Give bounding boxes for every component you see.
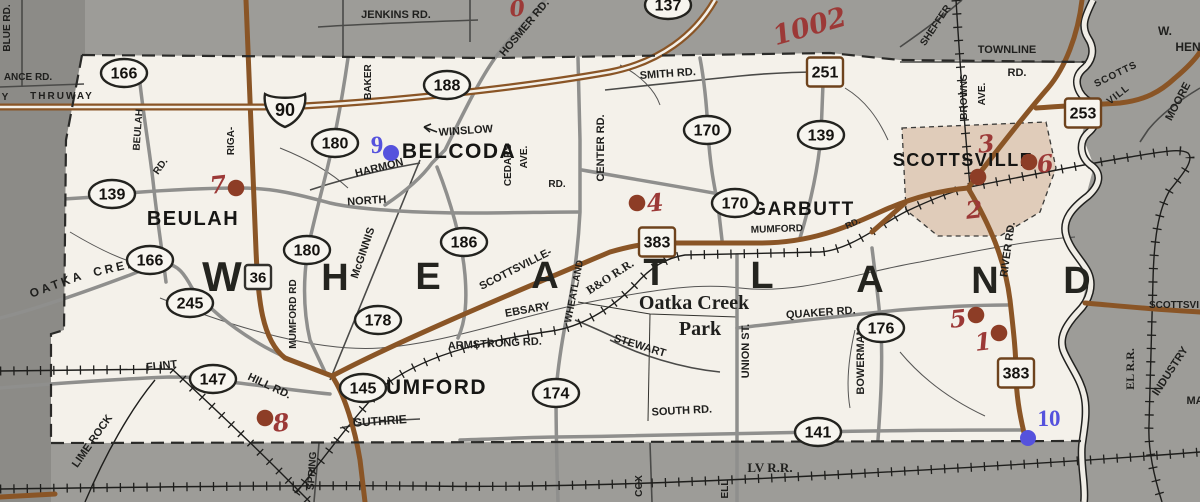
red-handwritten-8: 8: [270, 407, 291, 438]
route-oval-label-188: 188: [434, 78, 461, 95]
blue-marker-dot: [383, 145, 399, 161]
map-canvas: WHEATLAND BLUE RD.ANCE RD.YTHRUWAYJENKIN…: [0, 0, 1200, 502]
road-label-ave-: AVE.: [519, 145, 530, 168]
road-label-mumford: MUMFORD: [751, 223, 804, 236]
red-handwritten-7: 7: [208, 169, 228, 200]
serif-label-lv-r-r-: LV R.R.: [747, 460, 792, 475]
road-label-rd-: RD.: [1008, 67, 1027, 79]
route-oval-label-145: 145: [350, 381, 377, 398]
region-letter-8: D: [1063, 260, 1090, 302]
town-label-belcoda: BELCODA: [402, 140, 516, 163]
red-handwritten-0: 0: [508, 0, 527, 23]
road-label-riga-: RIGA-: [226, 127, 237, 155]
town-label-garbutt: GARBUTT: [751, 199, 854, 220]
red-handwritten-6: 6: [1035, 148, 1055, 179]
road-label-union-st-: UNION ST.: [740, 324, 752, 378]
route-oval-label-139: 139: [99, 187, 126, 204]
interstate-shield-label-90: 90: [275, 100, 295, 120]
region-letter-1: H: [321, 257, 348, 299]
road-label-center-rd-: CENTER RD.: [595, 114, 607, 181]
wheatland-road-map: WHEATLAND BLUE RD.ANCE RD.YTHRUWAYJENKIN…: [0, 0, 1200, 502]
road-label-blue-rd-: BLUE RD.: [2, 4, 13, 51]
road-label-townline: TOWNLINE: [978, 44, 1036, 56]
serif-label-park: Park: [679, 318, 722, 340]
road-label-baker: BAKER: [363, 63, 374, 99]
town-label-beulah: BEULAH: [147, 208, 239, 230]
road-label-hen: HEN: [1175, 40, 1200, 54]
red-marker-dot: [991, 325, 1008, 342]
red-handwritten-1: 1: [973, 326, 993, 357]
route-oval-label-137: 137: [655, 0, 682, 15]
route-oval-label-245: 245: [177, 296, 204, 313]
road-label-thruway: THRUWAY: [30, 91, 94, 102]
route-oval-label-139: 139: [808, 128, 835, 145]
route-square-label-251: 251: [812, 65, 839, 82]
region-letter-6: A: [856, 259, 883, 301]
route-oval-label-180: 180: [322, 136, 349, 153]
route-oval-label-141: 141: [805, 425, 832, 442]
route-oval-label-170: 170: [694, 123, 721, 140]
road-label-w-: W.: [1158, 24, 1172, 38]
road-label-ma: MA: [1186, 395, 1200, 407]
road-label-mumford-rd: MUMFORD RD: [288, 279, 299, 348]
road-label-rd-: RD.: [548, 179, 565, 190]
serif-label-el-r-r-: EL R.R.: [1123, 348, 1137, 390]
red-marker-dot: [629, 195, 646, 212]
region-letter-7: N: [971, 260, 998, 302]
road-label-jenkins-rd-: JENKINS RD.: [361, 9, 431, 21]
road-label-cox: COX: [634, 475, 645, 497]
route-oval-label-174: 174: [543, 386, 570, 403]
route-oval-label-180: 180: [294, 243, 321, 260]
road-label-ave-: AVE.: [977, 82, 988, 105]
blue-number-10: 10: [1038, 406, 1061, 431]
route-oval-label-178: 178: [365, 313, 392, 330]
region-letter-2: E: [415, 256, 440, 298]
route-oval-label-176: 176: [868, 321, 895, 338]
route-square-label-383: 383: [644, 235, 671, 252]
road-label-y: Y: [2, 92, 9, 103]
route-oval-label-166: 166: [111, 66, 138, 83]
route-oval-label-166: 166: [137, 253, 164, 270]
region-letter-4: T: [643, 252, 666, 294]
region-letter-5: L: [750, 255, 773, 297]
town-label-scottsville: SCOTTSVILLE: [893, 150, 1034, 170]
route-oval-label-170: 170: [722, 196, 749, 213]
road-label-ell: ELL: [720, 480, 731, 499]
route-square-label-383: 383: [1003, 366, 1030, 383]
road-label-scottsvi: SCOTTSVI: [1149, 300, 1199, 311]
red-handwritten-5: 5: [948, 303, 968, 334]
red-marker-dot: [968, 307, 985, 324]
red-marker-dot: [1021, 154, 1038, 171]
red-handwritten-3: 3: [976, 128, 996, 159]
route-oval-label-186: 186: [451, 235, 478, 252]
serif-label-oatka-creek: Oatka Creek: [639, 292, 750, 314]
red-marker-dot: [970, 169, 987, 186]
blue-marker-dot: [1020, 430, 1036, 446]
red-handwritten-2: 2: [963, 194, 984, 225]
route-oval-label-147: 147: [200, 372, 227, 389]
red-marker-dot: [228, 180, 245, 197]
red-handwritten-4: 4: [645, 187, 665, 218]
route-square-label-36: 36: [250, 270, 267, 287]
route-square-label-253: 253: [1070, 106, 1097, 123]
road-label-browns: BROWNS: [959, 74, 970, 120]
blue-number-9: 9: [371, 132, 384, 159]
road-label-ance-rd-: ANCE RD.: [4, 72, 53, 83]
